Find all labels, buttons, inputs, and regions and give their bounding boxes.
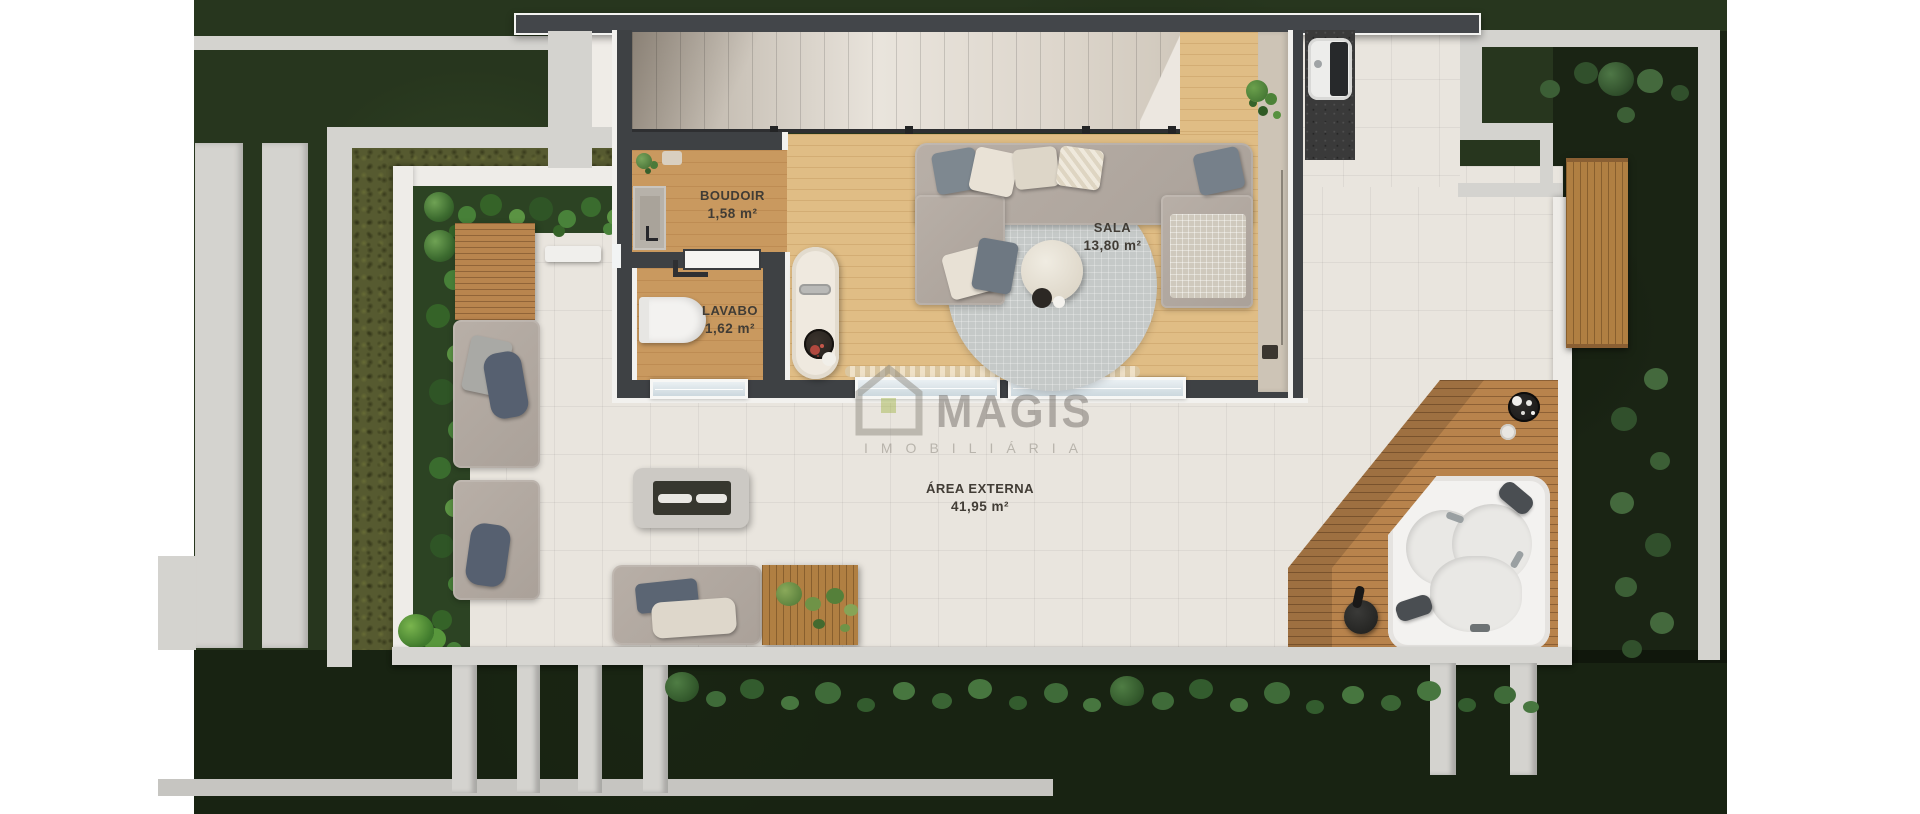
monstera-garden-right: [1598, 62, 1634, 96]
room-name: ÁREA EXTERNA: [900, 481, 1060, 496]
plants-left-band: [424, 230, 456, 262]
canvas-margin-left: [0, 0, 158, 814]
sala-plant: [1246, 80, 1268, 102]
garden-bar-left-1: [195, 143, 243, 648]
spa-jet-pad-3: [1470, 624, 1490, 632]
garden-bar-bottom-left: [158, 556, 196, 650]
pillar-5: [1430, 663, 1456, 775]
hedge-planter-left: [352, 148, 395, 650]
table-cup: [1053, 296, 1065, 308]
railing-bracket-3: [1082, 126, 1090, 134]
shrub-row-west: [665, 672, 699, 702]
courtyard-wall-2: [1460, 123, 1550, 140]
sink-towel: [1330, 42, 1348, 96]
window-bench: [545, 246, 601, 262]
floor-plan-render: BOUDOIR 1,58 m² SALA 13,80 m² LAVABO 1,6…: [0, 0, 1920, 814]
corner-bush: [398, 614, 434, 648]
pillow-white-2: [1012, 146, 1060, 190]
pillar-1: [452, 665, 477, 793]
garden-bench: [1566, 158, 1628, 348]
room-area: 13,80 m²: [1040, 238, 1185, 253]
garden-bar-left-2: [262, 143, 308, 648]
house-wall-left: [617, 30, 632, 398]
perimeter-wall-left: [327, 127, 352, 667]
sink-faucet: [1314, 60, 1322, 68]
pillar-2: [517, 665, 540, 793]
shrub-row-east: [1110, 676, 1144, 706]
railing-bracket-4: [1168, 126, 1176, 134]
wall-cap-1: [782, 132, 788, 150]
lounge-slat-table: [455, 223, 535, 320]
tray-flowers: [810, 345, 820, 355]
planter-bench: [762, 565, 858, 645]
pillar-3: [578, 665, 602, 793]
table-tray: [1032, 288, 1052, 308]
watermark-house-icon: [850, 362, 928, 440]
wall-stairs-boudoir: [617, 132, 782, 150]
bathtub-faucet: [799, 284, 831, 295]
room-label-lavabo: LAVABO 1,62 m²: [660, 303, 800, 336]
room-label-area-externa: ÁREA EXTERNA 41,95 m²: [900, 481, 1060, 514]
staircase: [632, 32, 1180, 130]
boudoir-decor: [662, 151, 682, 165]
railing-bracket-2: [905, 126, 913, 134]
pillar-6: [1510, 663, 1537, 775]
planter-plants: [776, 582, 802, 606]
towel-hook: [646, 226, 658, 241]
deck-small-pot: [1500, 424, 1516, 440]
garden-strip-bottom: [158, 779, 1053, 796]
house-wall-right: [1293, 30, 1303, 398]
terrace-wall-top: [393, 166, 613, 186]
pillow-knit: [1055, 145, 1104, 191]
room-name: BOUDOIR: [660, 188, 805, 203]
entry-pillar: [548, 31, 592, 168]
garden-path-top: [194, 36, 548, 50]
lavabo-wall-cap-left: [632, 268, 637, 380]
boudoir-door-handle: [673, 260, 708, 277]
canvas-margin-right: [1727, 0, 1920, 814]
stair-landing: [1140, 32, 1180, 130]
fire-table-bar-1: [658, 494, 692, 503]
fire-table-bar-2: [696, 494, 727, 503]
terrace-wall-left: [393, 166, 413, 663]
bathtub-cup: [822, 352, 836, 366]
credenza-rail: [1281, 170, 1283, 345]
room-label-sala: SALA 13,80 m²: [1040, 220, 1185, 253]
watermark-brand: MAGIS: [936, 384, 1093, 438]
room-label-boudoir: BOUDOIR 1,58 m²: [660, 188, 805, 221]
courtyard-wall-4: [1458, 183, 1563, 197]
canvas-margin-left-2: [158, 0, 194, 556]
jacuzzi-basin-3: [1430, 556, 1522, 632]
deck-flowers: [1512, 396, 1522, 406]
wall-right-outer: [1698, 47, 1720, 660]
plants-top-band: [424, 192, 454, 222]
room-area: 1,58 m²: [660, 206, 805, 221]
wall-top-right: [1460, 30, 1720, 47]
room-name: LAVABO: [660, 303, 800, 318]
room-area: 1,62 m²: [660, 321, 800, 336]
boudoir-plant: [636, 153, 652, 169]
terrace-wall-south: [392, 647, 1572, 665]
room-area: 41,95 m²: [900, 499, 1060, 514]
room-name: SALA: [1040, 220, 1185, 235]
credenza-item: [1262, 345, 1278, 359]
watermark: MAGIS IMOBILIÁRIA: [850, 360, 1170, 470]
watermark-subtitle: IMOBILIÁRIA: [864, 440, 1091, 456]
lavabo-window: [650, 379, 748, 399]
boudoir-window-left: [612, 244, 621, 268]
south-pillow-light: [651, 597, 737, 639]
